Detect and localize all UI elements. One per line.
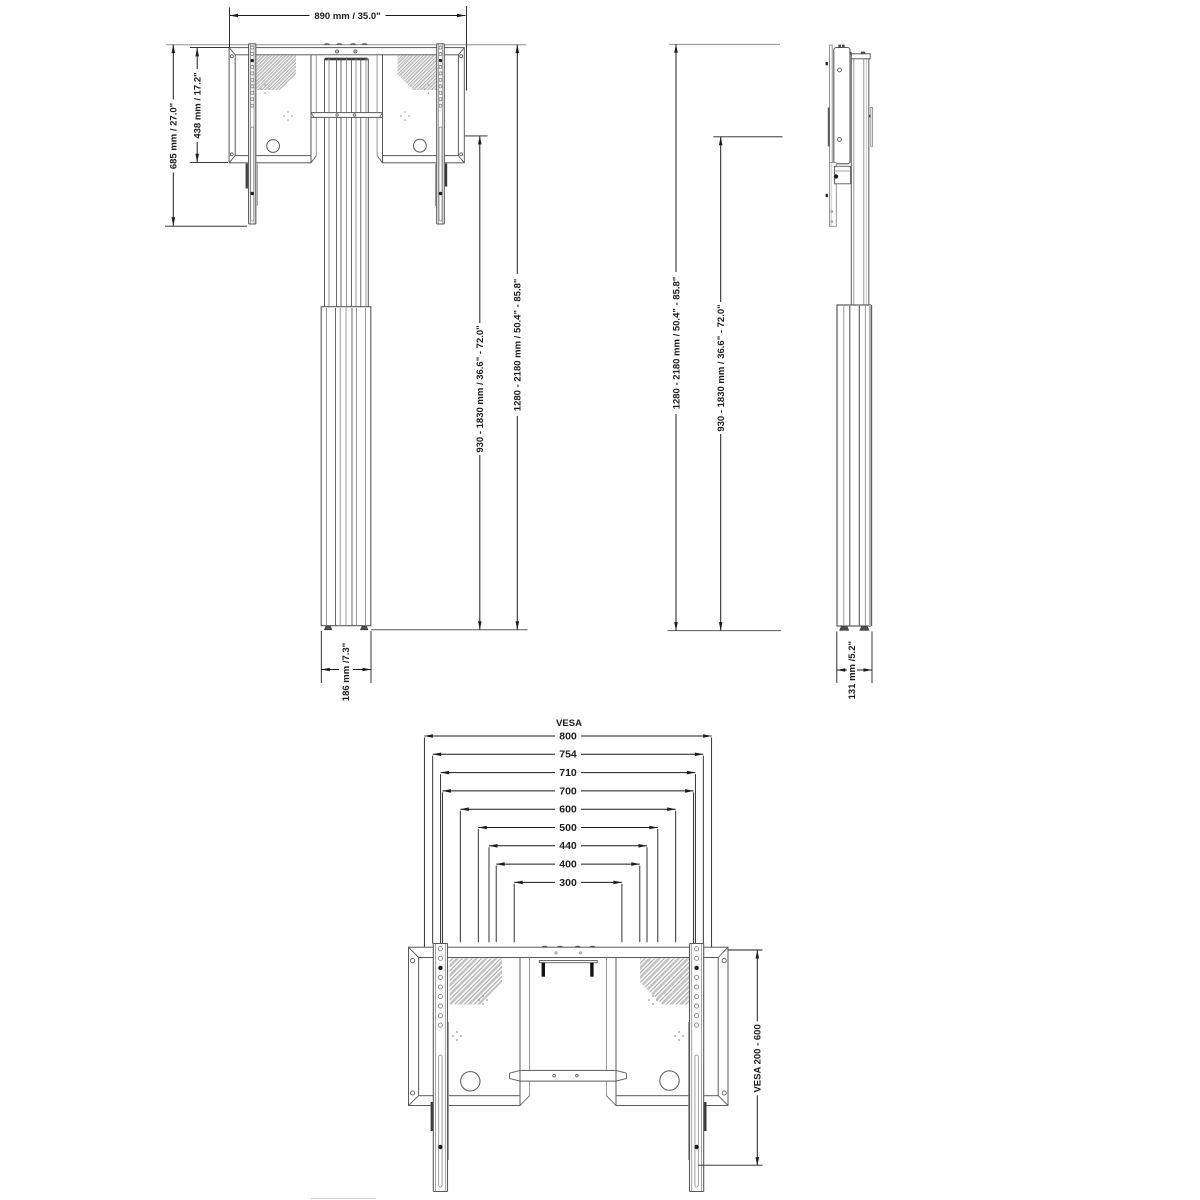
- svg-text:1280 - 2180 mm / 50.4" - 85.8": 1280 - 2180 mm / 50.4" - 85.8": [671, 277, 682, 410]
- svg-text:710: 710: [559, 767, 577, 779]
- svg-text:186 mm /7.3": 186 mm /7.3": [341, 643, 352, 701]
- svg-text:700: 700: [559, 785, 577, 797]
- svg-text:438 mm / 17.2": 438 mm / 17.2": [193, 72, 204, 138]
- svg-text:400: 400: [559, 859, 577, 871]
- svg-text:754: 754: [559, 749, 577, 761]
- svg-text:685 mm / 27.0": 685 mm / 27.0": [169, 103, 180, 169]
- svg-text:VESA: VESA: [556, 718, 582, 729]
- svg-text:600: 600: [559, 804, 577, 816]
- svg-text:930 - 1830 mm / 36.6" - 72.0": 930 - 1830 mm / 36.6" - 72.0": [716, 304, 727, 431]
- svg-text:1280 - 2180 mm / 50.4" - 85.8": 1280 - 2180 mm / 50.4" - 85.8": [513, 279, 524, 412]
- svg-text:440: 440: [559, 840, 577, 852]
- svg-text:800: 800: [559, 730, 577, 742]
- svg-text:500: 500: [559, 822, 577, 834]
- svg-text:131 mm /5.2": 131 mm /5.2": [847, 641, 858, 699]
- svg-text:300: 300: [559, 877, 577, 889]
- svg-text:930 - 1830 mm / 36.6" - 72.0": 930 - 1830 mm / 36.6" - 72.0": [475, 325, 486, 452]
- svg-text:VESA 200 - 600: VESA 200 - 600: [753, 1024, 764, 1092]
- svg-text:890 mm / 35.0": 890 mm / 35.0": [314, 11, 380, 22]
